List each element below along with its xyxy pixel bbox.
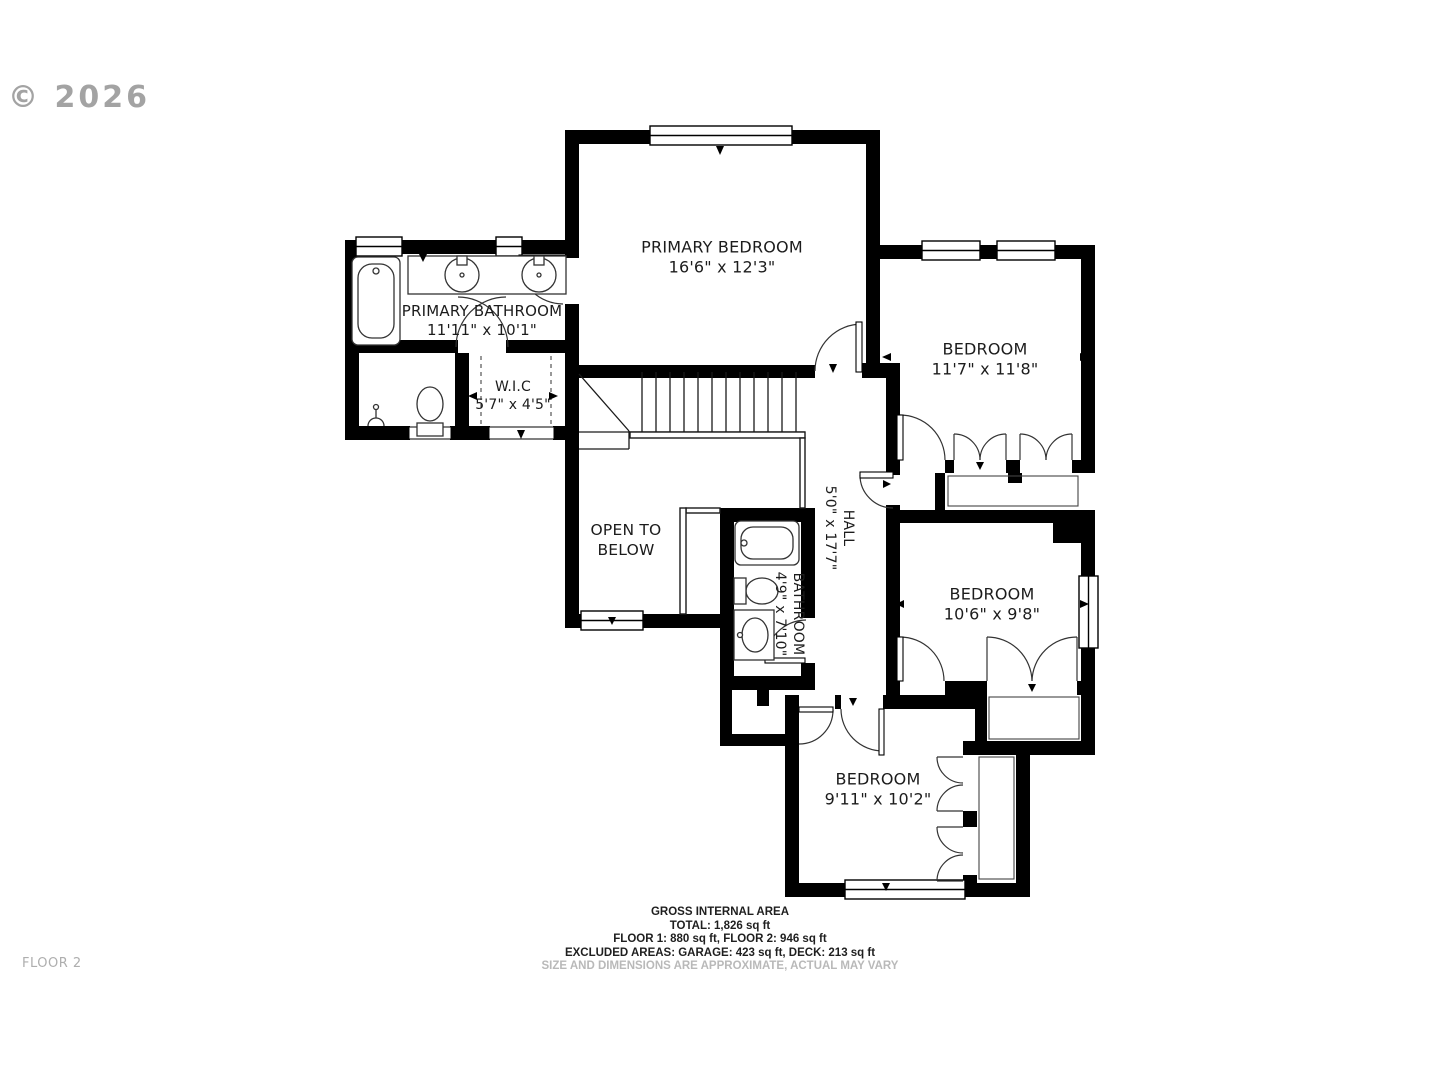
window	[650, 126, 792, 145]
closet-door-arc	[937, 757, 963, 783]
room-dims: 11'7" x 11'8"	[932, 360, 1039, 380]
room-dims: 9'11" x 10'2"	[825, 790, 932, 810]
double-sink-vanity-icon	[408, 256, 566, 294]
room-label-bedroom-top-right: BEDROOM 11'7" x 11'8"	[932, 340, 1039, 381]
room-dims: 4'9" x 7'10"	[770, 572, 788, 657]
room-name: W.I.C	[475, 379, 551, 397]
excluded-areas: EXCLUDED AREAS: GARAGE: 423 sq ft, DECK:…	[0, 947, 1440, 961]
floor-plan-page: PRIMARY BEDROOM 16'6" x 12'3" PRIMARY BA…	[0, 0, 1440, 1080]
closet-door-arc	[1032, 637, 1077, 681]
window	[356, 237, 402, 256]
room-name: PRIMARY BEDROOM	[641, 238, 803, 258]
door-arc	[900, 415, 945, 460]
bathtub-icon	[735, 521, 799, 565]
room-label-wic: W.I.C 5'7" x 4'5"	[475, 379, 551, 415]
room-name: BATHROOM	[788, 572, 806, 657]
room-dims: 16'6" x 12'3"	[641, 258, 803, 278]
room-label-open-to-below: OPEN TO BELOW	[561, 521, 691, 561]
closet-shelf	[979, 757, 1014, 879]
room-name: BEDROOM	[932, 340, 1039, 360]
room-label-bedroom-mid-right: BEDROOM 10'6" x 9'8"	[944, 585, 1040, 626]
door-arc	[815, 324, 862, 371]
window	[997, 241, 1055, 260]
window	[845, 880, 965, 899]
room-label-bedroom-bottom: BEDROOM 9'11" x 10'2"	[825, 770, 932, 811]
total-area: TOTAL: 1,826 sq ft	[0, 920, 1440, 934]
wall-light-icon	[368, 405, 384, 427]
door-arc	[900, 637, 944, 681]
door-leaf	[860, 472, 893, 478]
closet-door-arc	[987, 637, 1032, 681]
door-arc	[841, 709, 883, 751]
toilet-icon	[417, 387, 443, 436]
window	[496, 237, 522, 256]
door-leaf	[856, 322, 862, 372]
window	[922, 241, 980, 260]
closet-door-arc	[937, 855, 963, 881]
room-name: BEDROOM	[944, 585, 1040, 605]
door-leaf	[799, 707, 833, 712]
room-dims: 11'11" x 10'1"	[402, 321, 563, 340]
closet-door-arc	[980, 434, 1006, 460]
room-label-primary-bedroom: PRIMARY BEDROOM 16'6" x 12'3"	[641, 238, 803, 279]
door-leaf	[897, 637, 903, 681]
door-leaf	[879, 709, 884, 755]
sink-vanity-icon	[734, 610, 774, 660]
room-name: OPEN TO BELOW	[561, 521, 691, 561]
room-dims: 10'6" x 9'8"	[944, 605, 1040, 625]
room-label-hall: HALL 5'0" x 17'7"	[820, 486, 856, 571]
disclaimer: SIZE AND DIMENSIONS ARE APPROXIMATE, ACT…	[0, 960, 1440, 974]
copyright-watermark: © 2026	[8, 80, 150, 115]
room-label-primary-bathroom: PRIMARY BATHROOM 11'11" x 10'1"	[402, 302, 563, 340]
closet-door-arc	[954, 434, 980, 460]
floor-areas: FLOOR 1: 880 sq ft, FLOOR 2: 946 sq ft	[0, 933, 1440, 947]
closet-door-arc	[1046, 434, 1072, 460]
room-dims: 5'0" x 17'7"	[820, 486, 838, 571]
window	[1079, 576, 1098, 648]
room-name: HALL	[838, 486, 856, 571]
area-summary: GROSS INTERNAL AREA TOTAL: 1,826 sq ft F…	[0, 906, 1440, 974]
room-name: PRIMARY BATHROOM	[402, 302, 563, 321]
room-name: BEDROOM	[825, 770, 932, 790]
closet-door-arc	[937, 827, 963, 853]
gross-area-title: GROSS INTERNAL AREA	[0, 906, 1440, 920]
door-arc	[799, 710, 833, 744]
room-dims: 5'7" x 4'5"	[475, 397, 551, 415]
closet-shelf	[989, 697, 1079, 739]
closet-door-arc	[1020, 434, 1046, 460]
bathtub-icon	[352, 257, 400, 345]
door-leaf	[897, 415, 903, 460]
door-arc	[860, 475, 893, 508]
room-label-bathroom: BATHROOM 4'9" x 7'10"	[770, 572, 806, 657]
closet-door-arc	[937, 785, 963, 811]
